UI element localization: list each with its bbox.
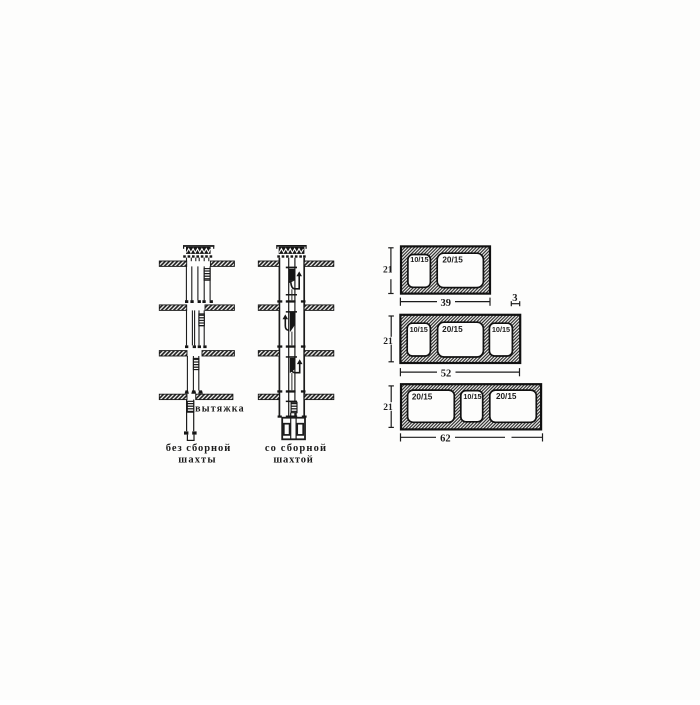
svg-text:3: 3	[512, 293, 517, 304]
svg-text:52: 52	[441, 368, 452, 379]
svg-text:шахтой: шахтой	[273, 454, 313, 465]
svg-text:21: 21	[383, 403, 393, 413]
svg-text:со сборной: со сборной	[265, 443, 327, 454]
svg-text:без сборной: без сборной	[166, 443, 231, 454]
svg-text:20/15: 20/15	[496, 392, 517, 401]
svg-text:вытяжка: вытяжка	[195, 403, 245, 414]
svg-text:10/15: 10/15	[410, 255, 428, 264]
svg-text:21: 21	[383, 337, 393, 347]
svg-text:10/15: 10/15	[463, 392, 481, 401]
svg-text:10/15: 10/15	[410, 325, 428, 334]
svg-text:20/15: 20/15	[412, 392, 433, 401]
svg-text:21: 21	[383, 266, 393, 276]
svg-text:20/15: 20/15	[442, 325, 463, 334]
svg-text:20/15: 20/15	[442, 255, 463, 264]
svg-text:62: 62	[440, 433, 451, 444]
svg-text:шахты: шахты	[178, 454, 216, 465]
svg-text:39: 39	[441, 298, 452, 309]
svg-text:10/15: 10/15	[492, 325, 510, 334]
